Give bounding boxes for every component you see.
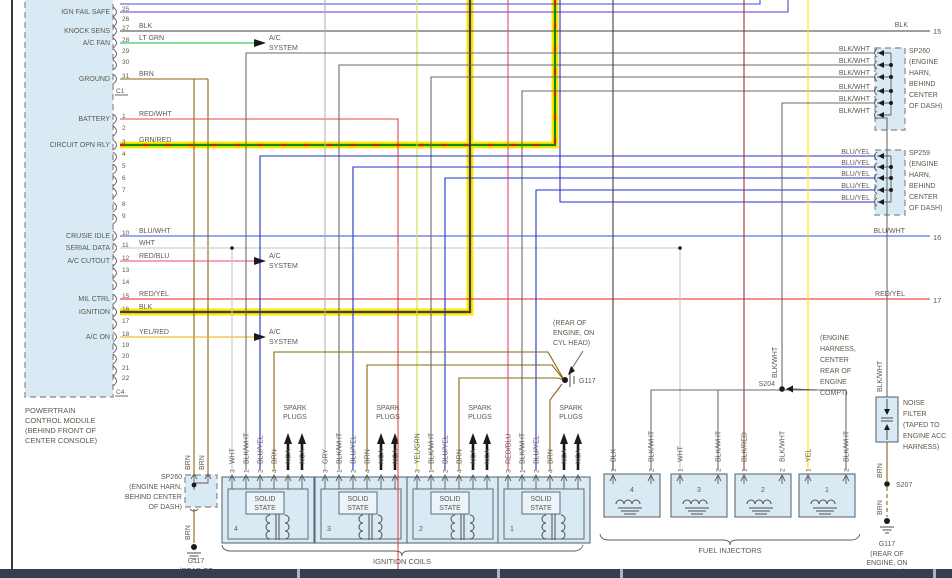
solid-state-label: STATE xyxy=(530,505,552,512)
noise-filter-label: (TAPED TO xyxy=(903,422,940,429)
ac-system-label: A/C xyxy=(269,329,281,336)
inj-pin-num: 2 xyxy=(844,468,851,472)
wire-label: YEL/RED xyxy=(139,329,169,336)
pin-name: A/C CUTOUT xyxy=(67,258,110,265)
wire-label-rot: BRN xyxy=(457,449,464,464)
g117-left-ground-dot xyxy=(191,544,197,550)
inj-pin-num: 1 xyxy=(806,468,813,472)
wire-label: BLK/WHT xyxy=(839,108,871,115)
splice-dot xyxy=(889,176,893,180)
wiring-diagram: IGN FAIL SAFE KNOCK SENS A/C FAN GROUND … xyxy=(0,0,952,578)
pin-number: 4 xyxy=(122,151,126,158)
sp259-box xyxy=(875,150,905,215)
sp259-loc: HARN, xyxy=(909,172,931,179)
spark-arrow-icon xyxy=(377,433,385,444)
sp259-loc: OF DASH) xyxy=(909,205,942,212)
wire-label: RED/YEL xyxy=(875,291,905,298)
wire-label: LT GRN xyxy=(139,35,164,42)
g117-mid-name: G117 xyxy=(579,378,596,385)
pin-name: IGNITION xyxy=(79,309,110,316)
wire-ign-fail-safe xyxy=(120,0,788,12)
sp260-top-loc: OF DASH) xyxy=(909,103,942,110)
inj-pin-num: 2 xyxy=(649,468,656,472)
wire-ref-17: 17 xyxy=(933,296,941,305)
spark-plugs-label: SPARK xyxy=(468,405,492,412)
s204-name: S204 xyxy=(759,381,775,388)
s204-loc: (ENGINE xyxy=(820,335,850,342)
pin-name: CIRCUIT OPN RLY xyxy=(50,142,111,149)
highlight-grn-red-circuit xyxy=(120,0,555,145)
coil-pin-num: 1 xyxy=(244,469,251,473)
fuel-injector-2 xyxy=(735,474,791,517)
wire-label-rot: BRN xyxy=(185,525,192,540)
pin-number: 26 xyxy=(122,16,130,23)
coil-pin-num: 4 xyxy=(272,469,279,473)
wire-label: BRN xyxy=(139,71,154,78)
wire-label: RED/BLU xyxy=(139,253,169,260)
spark-plugs-label: PLUGS xyxy=(283,414,307,421)
solid-state-label: STATE xyxy=(347,505,369,512)
pin-number: 6 xyxy=(122,175,126,182)
wire-label-rot: BLK/WHT xyxy=(780,430,787,462)
s204-loc: COMPT) xyxy=(820,390,848,397)
sp259-loc: CENTER xyxy=(909,194,938,201)
wire-label-rot: BLU/YEL xyxy=(258,435,265,464)
sp260-top-loc: HARN, xyxy=(909,70,931,77)
wire-label-rot: BRN xyxy=(877,500,884,515)
coil-pin-num: 1 xyxy=(337,469,344,473)
pin-name: BATTERY xyxy=(78,116,110,123)
pin-name: GROUND xyxy=(79,76,110,83)
s204-pointer-arrow-icon xyxy=(786,386,793,393)
nca-label: NCA xyxy=(393,449,400,464)
pin-number: 2 xyxy=(122,125,126,132)
s204-loc: ENGINE xyxy=(820,379,847,386)
g117-mid-loc: ENGINE, ON xyxy=(553,330,594,337)
solid-state-label: SOLID xyxy=(530,496,551,503)
fuel-injector-1 xyxy=(799,474,855,517)
bottom-bar-strip xyxy=(0,569,952,578)
noise-filter-label: ENGINE ACC xyxy=(903,433,946,440)
sp260-top-loc: (ENGINE xyxy=(909,59,939,66)
ignition-coils-caption: IGNITION COILS xyxy=(373,557,431,566)
wire-label: BLK/WHT xyxy=(839,84,871,91)
g117-right-name: G117 xyxy=(879,541,896,548)
fuel-injector-3 xyxy=(671,474,727,517)
injector-number: 4 xyxy=(630,487,634,494)
sp260-bottom-loc: (ENGINE HARN, xyxy=(129,484,182,491)
g117-mid-ground-dot xyxy=(562,377,568,383)
coil-number: 3 xyxy=(327,526,331,533)
fuel-injectors-brace xyxy=(600,534,860,545)
pin-number: 22 xyxy=(122,375,130,382)
g117-right-loc: ENGINE, ON xyxy=(866,560,907,567)
pin-name: CRUSIE IDLE xyxy=(66,233,110,240)
solid-state-label: SOLID xyxy=(254,496,275,503)
wire-label: BLK xyxy=(895,22,909,29)
sp260-bottom-loc: OF DASH) xyxy=(149,504,182,511)
g117-mid-loc: CYL HEAD) xyxy=(553,340,590,347)
injector-number: 1 xyxy=(825,487,829,494)
coil-pin-num: 3 xyxy=(230,469,237,473)
wire-label: BLK/WHT xyxy=(839,46,871,53)
wire-label-rot: BLU/YEL xyxy=(351,435,358,464)
splice-dot xyxy=(889,89,893,93)
sp259-name: SP259 xyxy=(909,150,930,157)
wire-label-rot: BRN xyxy=(365,449,372,464)
spark-plugs-label: SPARK xyxy=(376,405,400,412)
pin-number: 25 xyxy=(122,6,130,13)
wire-label: BLK xyxy=(139,23,153,30)
wire-label: BLK/WHT xyxy=(839,58,871,65)
g117-mid-ground-icon xyxy=(570,373,574,387)
wire-label-rot: WHT xyxy=(230,447,237,464)
wire-label: BLU/YEL xyxy=(841,171,870,178)
wire-violet-2 xyxy=(120,0,760,4)
g117-right-ground-dot xyxy=(884,518,890,524)
pin-number: 18 xyxy=(122,331,130,338)
sp260-bottom-loc: BEHIND CENTER xyxy=(125,494,182,501)
wire-label-rot: GRY xyxy=(323,449,330,464)
s207-splice-dot xyxy=(884,481,890,487)
pin-number: 1 xyxy=(122,113,126,120)
wire-label-rot: BRN xyxy=(272,449,279,464)
inj-pin-num: 1 xyxy=(611,468,618,472)
solid-state-label: STATE xyxy=(439,505,461,512)
coil-pin-num: 2 xyxy=(443,469,450,473)
wire-label-rot: BRN xyxy=(199,455,206,470)
nca-label: NCA xyxy=(286,449,293,464)
spark-arrow-icon xyxy=(483,433,491,444)
coil-pin-num: 3 xyxy=(506,469,513,473)
wire-label-rot: BLK/WHT xyxy=(429,432,436,464)
solid-state-label: SOLID xyxy=(439,496,460,503)
pin-number: 15 xyxy=(122,293,130,300)
coil-pin-num: 3 xyxy=(323,469,330,473)
wire-label: BLU/WHT xyxy=(139,228,171,235)
injector-number: 2 xyxy=(761,487,765,494)
coil-pin-num: 2 xyxy=(258,469,265,473)
coil-pin-num: 3 xyxy=(415,469,422,473)
pin-name: A/C ON xyxy=(86,334,110,341)
pin-name: IGN FAIL SAFE xyxy=(61,9,110,16)
pcm-title-line: CONTROL MODULE xyxy=(25,416,96,425)
junction-dot xyxy=(678,246,682,250)
noise-filter-label: HARNESS) xyxy=(903,444,939,451)
connector-ref: C4 xyxy=(116,389,125,396)
fuel-injector-4 xyxy=(604,474,660,517)
solid-state-label: SOLID xyxy=(347,496,368,503)
splice-dot xyxy=(192,483,197,488)
ac-system-label: SYSTEM xyxy=(269,263,298,270)
bar-separator xyxy=(620,569,623,578)
pin-number: 14 xyxy=(122,279,130,286)
wiring-diagram-page: IGN FAIL SAFE KNOCK SENS A/C FAN GROUND … xyxy=(0,0,952,578)
spark-arrow-icon xyxy=(469,433,477,444)
pin-name: A/C FAN xyxy=(83,40,110,47)
spark-plugs-label: SPARK xyxy=(283,405,307,412)
pin-number: 17 xyxy=(122,318,130,325)
pcm-title-line: (BEHIND FRONT OF xyxy=(25,426,97,435)
pin-name: MIL CTRL xyxy=(78,296,110,303)
wire-label-rot: BLK/WHT xyxy=(649,430,656,462)
ac-system-label: A/C xyxy=(269,253,281,260)
pin-number: 10 xyxy=(122,230,130,237)
bar-separator xyxy=(297,569,300,578)
coil-number: 1 xyxy=(510,526,514,533)
nca-label: NCA xyxy=(379,449,386,464)
wire-coil-bluyel-to-sp259 xyxy=(260,0,875,470)
wire-label-rot: BRN xyxy=(185,455,192,470)
ignition-coils-brace xyxy=(222,545,583,556)
spark-plugs-label: PLUGS xyxy=(468,414,492,421)
pin-number: 20 xyxy=(122,353,130,360)
inj-pin-num: 1 xyxy=(678,468,685,472)
nca-label: NCA xyxy=(300,449,307,464)
coil-pin-num: 1 xyxy=(429,469,436,473)
spark-arrow-icon xyxy=(298,433,306,444)
pin-number: 12 xyxy=(122,255,130,262)
g117-right-ground-icon xyxy=(880,527,894,533)
noise-filter-label: NOISE xyxy=(903,400,925,407)
spark-plugs-label: PLUGS xyxy=(376,414,400,421)
wire-label: BLU/YEL xyxy=(841,195,870,202)
ac-system-label: SYSTEM xyxy=(269,45,298,52)
pin-number: 16 xyxy=(122,306,130,313)
spark-arrow-icon xyxy=(284,433,292,444)
coil-pin-num: 1 xyxy=(520,469,527,473)
splice-dot xyxy=(889,101,893,105)
s204-loc: CENTER xyxy=(820,357,849,364)
coil-pin-num: 4 xyxy=(548,469,555,473)
wire-label: RED/YEL xyxy=(139,291,169,298)
pin-number: 21 xyxy=(122,365,130,372)
wire-label-rot: BLK xyxy=(611,448,618,462)
inj-pin-num: 2 xyxy=(716,468,723,472)
bar-separator xyxy=(497,569,500,578)
wire-label: RED/WHT xyxy=(139,111,172,118)
pin-number: 8 xyxy=(122,201,126,208)
pin-number: 5 xyxy=(122,163,126,170)
wire-label: BLU/WHT xyxy=(874,228,906,235)
junction-dot xyxy=(230,246,234,250)
wire-label: BLK/WHT xyxy=(839,96,871,103)
solid-state-label: STATE xyxy=(254,505,276,512)
spark-plugs-label: PLUGS xyxy=(559,414,583,421)
splice-dot xyxy=(889,75,893,79)
wire-label: BLU/YEL xyxy=(841,160,870,167)
nca-label: NCA xyxy=(562,449,569,464)
inj-pin-num: 2 xyxy=(780,468,787,472)
g117-mid-pointer-line xyxy=(571,351,583,370)
wire-label: WHT xyxy=(139,240,156,247)
spark-arrow-icon xyxy=(560,433,568,444)
sp259-loc: (ENGINE xyxy=(909,161,939,168)
pin-number: 19 xyxy=(122,342,130,349)
g117-mid-pointer-arrow-icon xyxy=(568,366,575,375)
spark-plugs-label: SPARK xyxy=(559,405,583,412)
pin-number: 7 xyxy=(122,187,126,194)
coil-pin-num: 2 xyxy=(351,469,358,473)
wire-label-rot: BLK/WHT xyxy=(244,432,251,464)
wire-label-rot: BLU/YEL xyxy=(443,435,450,464)
sp259-loc: BEHIND xyxy=(909,183,935,190)
fuel-injectors-caption: FUEL INJECTORS xyxy=(698,546,761,555)
wire-label: BLU/YEL xyxy=(841,183,870,190)
sp260-top-name: SP260 xyxy=(909,48,930,55)
spark-arrow-icon xyxy=(574,433,582,444)
g117-right-loc: (REAR OF xyxy=(870,551,903,558)
coil-pin-num: 2 xyxy=(534,469,541,473)
pcm-title-line: CENTER CONSOLE) xyxy=(25,436,98,445)
wire-label-rot: BRN xyxy=(548,449,555,464)
s207-name: S207 xyxy=(896,482,912,489)
pin-number: 27 xyxy=(122,25,130,32)
bottom-bar xyxy=(0,569,952,578)
pin-number: 3 xyxy=(122,139,126,146)
wire-circuit-opn-rly-red-stripe xyxy=(120,0,555,145)
g117-mid-loc: (REAR OF xyxy=(553,320,586,327)
wire-label: BLK/WHT xyxy=(839,70,871,77)
pin-name: KNOCK SENS xyxy=(64,28,110,35)
connector-ref: C1 xyxy=(116,88,125,95)
sp260-top-loc: CENTER xyxy=(909,92,938,99)
wire-ref-16: 16 xyxy=(933,233,941,242)
pin-number: 11 xyxy=(122,242,129,249)
coil-pin-num: 4 xyxy=(365,469,372,473)
sp260-bottom-box xyxy=(185,475,217,507)
pcm-title-line: POWERTRAIN xyxy=(25,406,76,415)
wire-ref-15: 15 xyxy=(933,27,941,36)
pin-number: 9 xyxy=(122,213,126,220)
pin-number: 28 xyxy=(122,37,130,44)
wire-label: BLK xyxy=(139,304,153,311)
ac-system-label: A/C xyxy=(269,35,281,42)
inj-pin-num: 1 xyxy=(742,468,749,472)
nca-label: NCA xyxy=(576,449,583,464)
wire-label: BLU/YEL xyxy=(841,149,870,156)
wire-label-rot: BLK/WHT xyxy=(772,346,779,378)
wire-label-rot: BLU/YEL xyxy=(534,435,541,464)
wire-label-rot: BLK/WHT xyxy=(877,360,884,392)
coil-number: 2 xyxy=(419,526,423,533)
pin-name: SERIAL DATA xyxy=(66,245,111,252)
sp259-splice xyxy=(875,150,906,215)
coil-number: 4 xyxy=(234,526,238,533)
ac-system-label: SYSTEM xyxy=(269,339,298,346)
wire-label-rot: RED/BLU xyxy=(506,434,513,464)
wire-label-rot: BLK/WHT xyxy=(337,432,344,464)
wire-label: GRN/RED xyxy=(139,137,171,144)
pin-number: 31 xyxy=(122,73,130,80)
wire-label-rot: BLK/RED xyxy=(742,432,749,462)
ac-system-arrow-icon xyxy=(254,39,266,47)
splice-dot xyxy=(889,63,893,67)
nca-label: NCA xyxy=(485,449,492,464)
sp260-bottom-name: SP260 xyxy=(161,474,182,481)
bar-separator xyxy=(933,569,936,578)
noise-filter xyxy=(876,397,898,442)
wire-injector-blkwht-bus-s204 xyxy=(651,103,875,470)
s204-splice-dot xyxy=(779,386,785,392)
splice-dot xyxy=(889,165,893,169)
pin-number: 29 xyxy=(122,48,130,55)
splice-dot xyxy=(889,188,893,192)
wire-label-rot: BLK/WHT xyxy=(844,430,851,462)
sp260-bottom-splice xyxy=(185,474,217,511)
pin-number: 13 xyxy=(122,267,130,274)
wire-label-rot: BLK/WHT xyxy=(520,432,527,464)
wire-label-rot: YEL/GRN xyxy=(415,433,422,464)
wire-label-rot: WHT xyxy=(678,445,685,462)
injector-number: 3 xyxy=(697,487,701,494)
coil-pin-num: 4 xyxy=(457,469,464,473)
noise-filter-label: FILTER xyxy=(903,411,927,418)
wire-label-rot: BRN xyxy=(877,463,884,478)
pin-number: 30 xyxy=(122,59,130,66)
g117-left-name: G117 xyxy=(188,558,205,565)
wire-circuit-opn-rly-grnred xyxy=(120,0,555,145)
wire-label-rot: YEL xyxy=(806,449,813,462)
nca-label: NCA xyxy=(471,449,478,464)
s204-loc: HARNESS, xyxy=(820,346,856,353)
sp260-top-loc: BEHIND xyxy=(909,81,935,88)
wire-label-rot: BLK/WHT xyxy=(716,430,723,462)
s204-loc: REAR OF xyxy=(820,368,851,375)
